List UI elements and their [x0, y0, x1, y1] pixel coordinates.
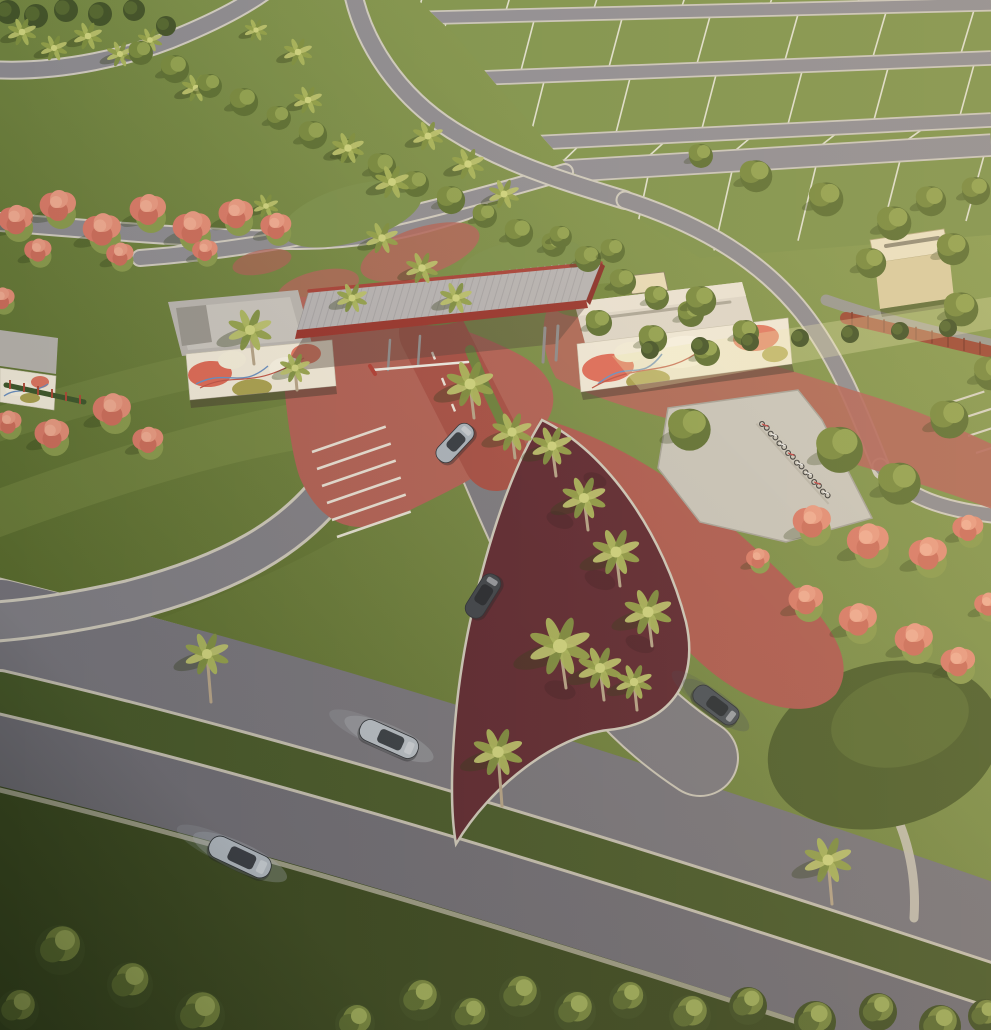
- scene-layers: [0, 0, 991, 1030]
- aerial-site-render: [0, 0, 991, 1030]
- warm-light-overlay: [0, 0, 991, 1030]
- aerial-render-canvas: [0, 0, 991, 1030]
